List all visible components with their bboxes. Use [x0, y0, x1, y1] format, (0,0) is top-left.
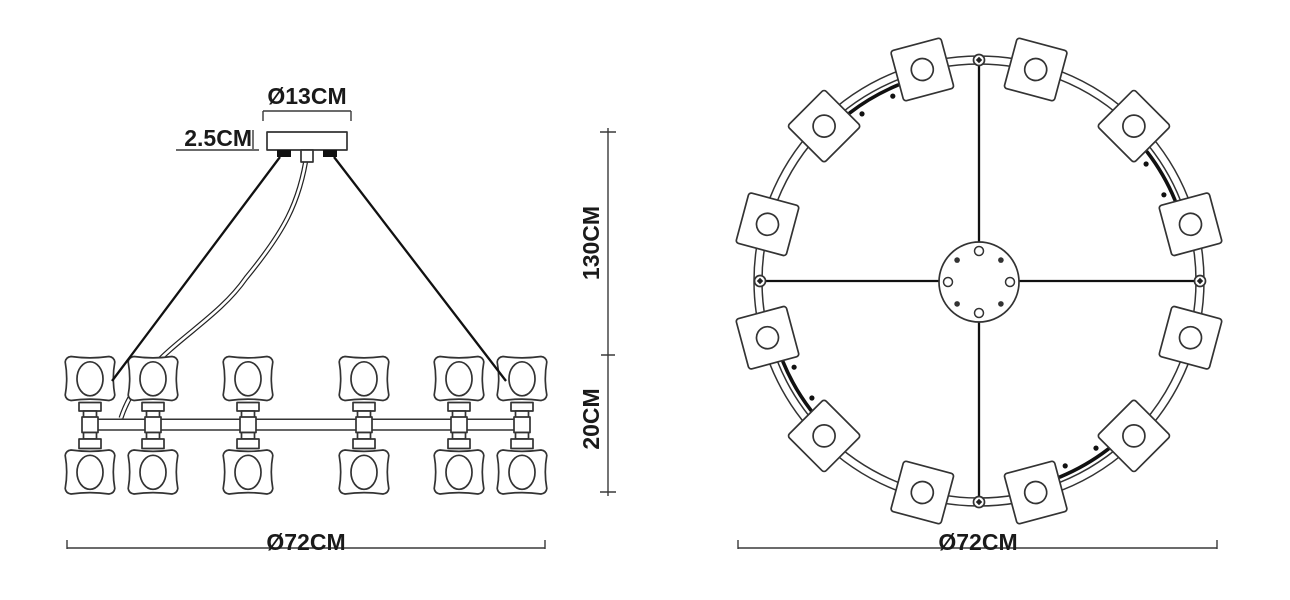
square-shade-1: [1004, 38, 1068, 102]
lamp-column-4: [339, 357, 389, 495]
square-shade-2: [1097, 89, 1171, 163]
square-shade-7: [890, 461, 954, 525]
lamp-column-2: [128, 357, 178, 495]
dim-overall-diameter-top: Ø72CM: [738, 529, 1217, 555]
lamp-column-1: [65, 357, 115, 495]
square-shade-12: [890, 38, 954, 102]
suspension-wire-right: [334, 157, 506, 381]
ring-connector-top: [974, 55, 985, 66]
square-shade-5: [1097, 399, 1171, 473]
canopy-height-label: 2.5CM: [184, 125, 252, 151]
ring-connector-right: [1195, 276, 1206, 287]
square-shade-11: [787, 89, 861, 163]
square-shade-10: [736, 192, 800, 256]
drawing-svg: Ø13CM 2.5CM 130CM 20CM Ø72CM: [0, 0, 1290, 600]
top-view: Ø72CM: [736, 38, 1223, 555]
square-shade-4: [1159, 306, 1223, 370]
suspension-height-label: 130CM: [578, 206, 604, 280]
square-shade-6: [1004, 461, 1068, 525]
ring-connector-left: [755, 276, 766, 287]
lamp-column-3: [223, 357, 273, 495]
chandelier-technical-drawing: Ø13CM 2.5CM 130CM 20CM Ø72CM: [0, 0, 1290, 600]
dim-heights: 130CM 20CM: [578, 128, 616, 496]
body-height-label: 20CM: [578, 388, 604, 449]
wire-hook-left: [277, 150, 291, 157]
wire-hook-right: [323, 150, 337, 157]
canopy-top: [939, 242, 1019, 322]
ring-connector-bottom: [974, 497, 985, 508]
overall-diameter-label-side: Ø72CM: [266, 529, 345, 555]
dim-canopy-height: 2.5CM: [176, 125, 259, 151]
lamp-column-5: [434, 357, 484, 495]
overall-diameter-label-top: Ø72CM: [938, 529, 1017, 555]
side-view: Ø13CM 2.5CM 130CM 20CM Ø72CM: [65, 83, 616, 555]
canopy-diameter-label: Ø13CM: [267, 83, 346, 109]
lamp-column-6: [497, 357, 547, 495]
dim-overall-diameter-side: Ø72CM: [67, 529, 545, 555]
square-shade-3: [1159, 192, 1223, 256]
square-shade-8: [787, 399, 861, 473]
dim-canopy-diameter: Ø13CM: [263, 83, 351, 121]
square-shade-9: [736, 306, 800, 370]
